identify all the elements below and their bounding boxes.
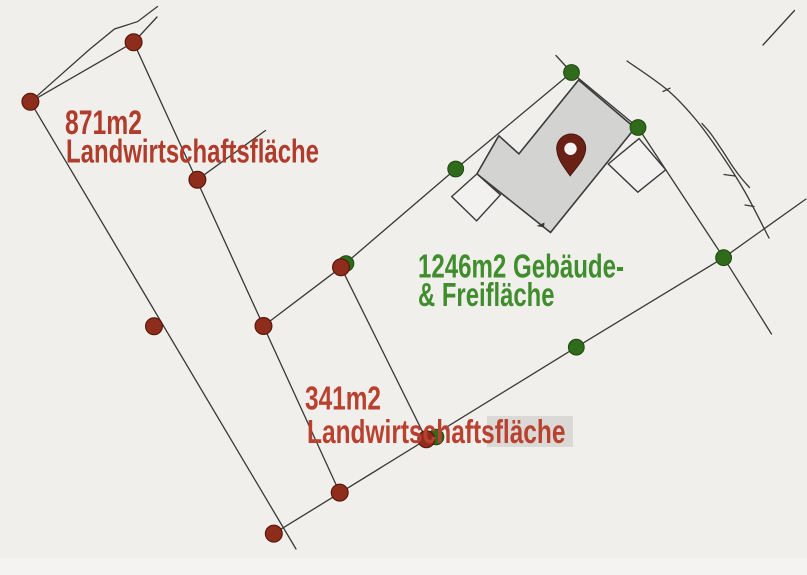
svg-text:Landwirtschaftsfläche: Landwirtschaftsfläche <box>66 132 319 169</box>
svg-text:341m2: 341m2 <box>305 380 381 417</box>
svg-text:Landwirtschaftsfläche: Landwirtschaftsfläche <box>307 413 566 450</box>
svg-text:& Freifläche: & Freifläche <box>418 276 555 313</box>
